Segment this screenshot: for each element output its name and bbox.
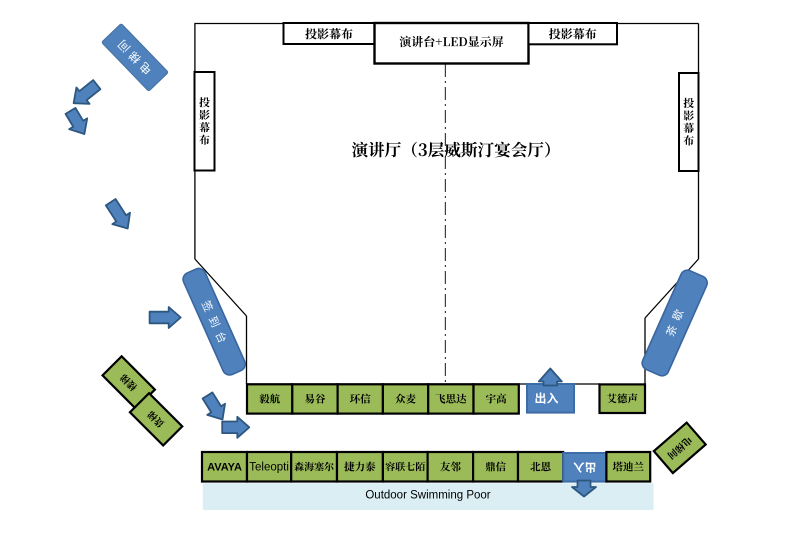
svg-text:Teleopti: Teleopti <box>249 462 289 474</box>
svg-text:Outdoor Swimming Poor: Outdoor Swimming Poor <box>365 490 490 502</box>
svg-text:AVAYA: AVAYA <box>207 462 242 474</box>
